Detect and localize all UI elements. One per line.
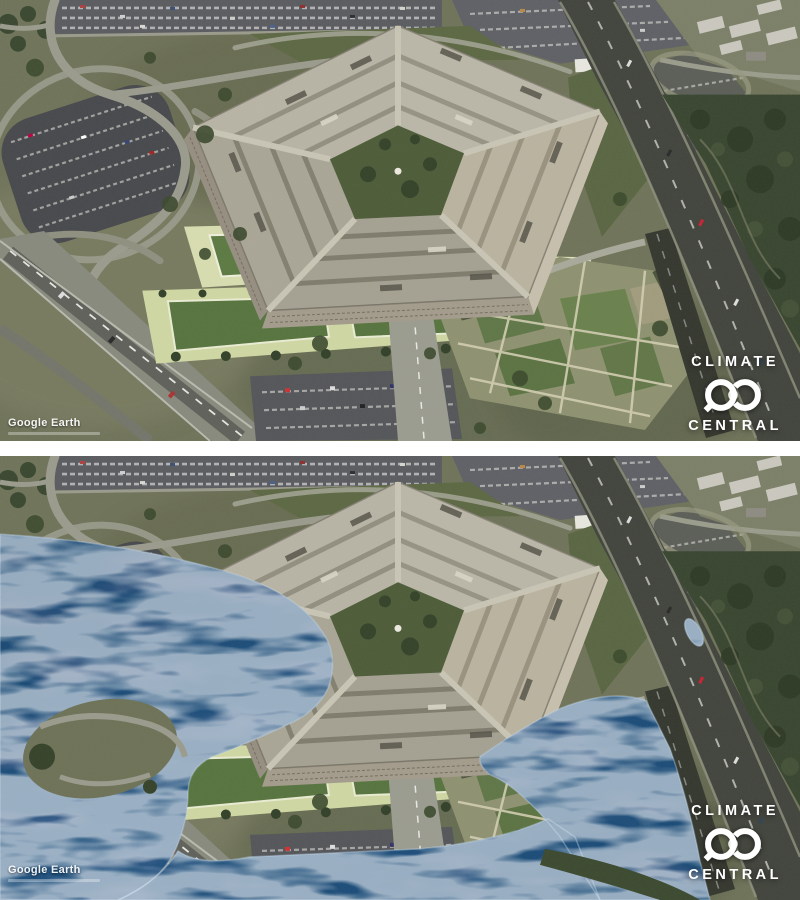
interlocking-c-icon: [696, 374, 770, 416]
logo-word-climate: CLIMATE: [685, 804, 782, 819]
satellite-panel-before: Google Earth CLIMATE CENTRAL: [0, 0, 800, 441]
climate-central-logo: CLIMATE CENTRAL: [685, 804, 782, 882]
satellite-panel-after: Google Earth CLIMATE CENTRAL: [0, 456, 800, 900]
panel-divider: [0, 441, 800, 456]
google-earth-watermark: Google Earth: [8, 417, 100, 435]
interlocking-c-icon: [696, 823, 770, 865]
logo-word-climate: CLIMATE: [685, 355, 782, 370]
google-earth-label: Google Earth: [8, 864, 100, 876]
google-earth-label: Google Earth: [8, 417, 100, 429]
photo-grain-overlay: [0, 0, 800, 441]
logo-word-central: CENTRAL: [685, 868, 782, 883]
photo-grain-overlay: [0, 456, 800, 900]
flood-comparison-image: Google Earth CLIMATE CENTRAL: [0, 0, 800, 900]
aerial-scene: [0, 0, 800, 441]
attribution-microtext: [8, 432, 100, 435]
climate-central-logo: CLIMATE CENTRAL: [685, 355, 782, 433]
google-earth-watermark: Google Earth: [8, 864, 100, 882]
aerial-scene-flooded: [0, 456, 800, 900]
attribution-microtext: [8, 879, 100, 882]
logo-word-central: CENTRAL: [685, 419, 782, 434]
